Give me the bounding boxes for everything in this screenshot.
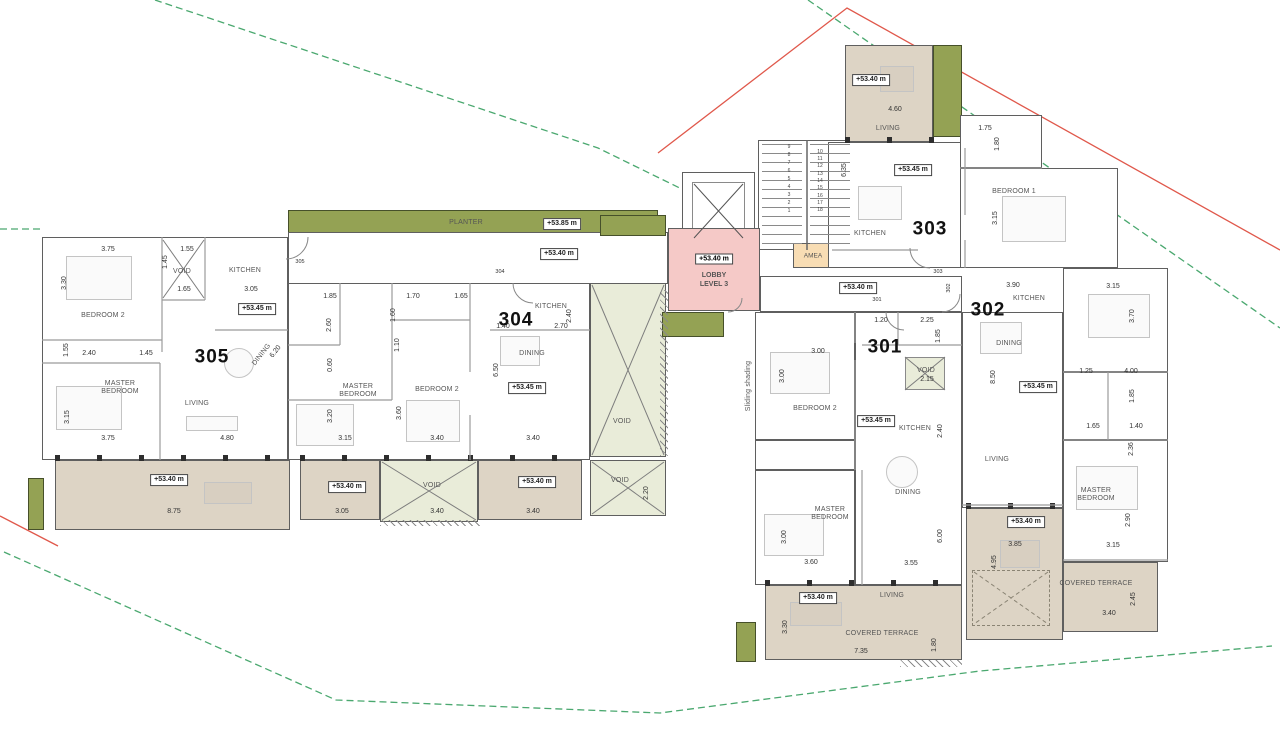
hatch-void-edge — [660, 290, 668, 456]
dining-table-305 — [224, 348, 254, 378]
columns-302 — [966, 503, 1063, 509]
columns-304 — [300, 455, 590, 461]
hatch-terrace-301 — [900, 660, 962, 667]
apartment-301-bath — [755, 440, 855, 470]
stair-flight-left — [762, 144, 802, 246]
lobby-label: LOBBY LEVEL 3 — [669, 271, 759, 289]
bed-302-master — [1076, 466, 1138, 510]
columns-303 — [845, 137, 962, 143]
columns-301 — [765, 580, 962, 586]
bed-303 — [1002, 196, 1066, 242]
dims-label: 3.90 — [1006, 282, 1020, 290]
bed-304-master — [296, 404, 354, 446]
void-301 — [905, 357, 945, 390]
dining-table-301 — [886, 456, 918, 488]
lobby-room: +53.40 m LOBBY LEVEL 3 — [668, 228, 760, 311]
green-boundary-topleft — [155, 0, 692, 194]
terrace-table-303 — [880, 66, 914, 92]
dining-table-303 — [858, 186, 902, 220]
apartment-302-hall — [1063, 372, 1168, 440]
apartment-301-main — [855, 312, 962, 585]
terrace-304-right — [478, 460, 582, 520]
rooms-label: KITCHEN — [1013, 295, 1045, 303]
pergola-302 — [972, 570, 1050, 626]
terrace-304-void — [380, 460, 478, 522]
corridor-left — [288, 232, 668, 284]
terrace-302-covered — [1063, 562, 1158, 632]
stair-flight-right — [810, 144, 850, 246]
terrace-303 — [845, 45, 933, 142]
dining-table-304 — [500, 336, 540, 366]
planter-d — [736, 622, 756, 662]
terrace-table-302 — [1000, 540, 1040, 568]
bed-301-master — [764, 514, 824, 556]
lobby-label-line1: LOBBY — [669, 271, 759, 280]
lobby-label-line2: LEVEL 3 — [669, 280, 759, 289]
void-main — [590, 283, 666, 457]
hatch-terrace-304 — [380, 520, 480, 526]
void-lower — [590, 460, 666, 516]
amea-room: AMEA — [793, 243, 833, 268]
terrace-305 — [55, 460, 290, 530]
bed-305-master — [56, 386, 122, 430]
floor-plan-canvas: +53.40 m LOBBY LEVEL 3 AMEA — [0, 0, 1280, 755]
amea-label: AMEA — [794, 252, 832, 259]
door-tags-label: 303 — [933, 269, 942, 275]
bed-304-bedroom2 — [406, 400, 460, 442]
planter-a — [600, 215, 666, 236]
rooms-label: Sliding shading — [745, 361, 753, 411]
sofa-305 — [186, 416, 238, 431]
planter-b — [662, 312, 724, 337]
terrace-304-left — [300, 460, 380, 520]
bed-301-bedroom2 — [770, 352, 830, 394]
terrace-table-301 — [790, 602, 842, 626]
lobby-elevation-badge: +53.40 m — [695, 254, 733, 265]
columns-305 — [55, 455, 290, 461]
terrace-table-305 — [204, 482, 252, 504]
dining-table-302 — [980, 322, 1022, 354]
apartment-303-bath — [960, 115, 1042, 168]
corridor-right — [760, 276, 962, 312]
bed-305-bedroom2 — [66, 256, 132, 300]
planter-c — [28, 478, 44, 530]
bed-302-bedroom1 — [1088, 294, 1150, 338]
planter-303 — [933, 45, 962, 137]
